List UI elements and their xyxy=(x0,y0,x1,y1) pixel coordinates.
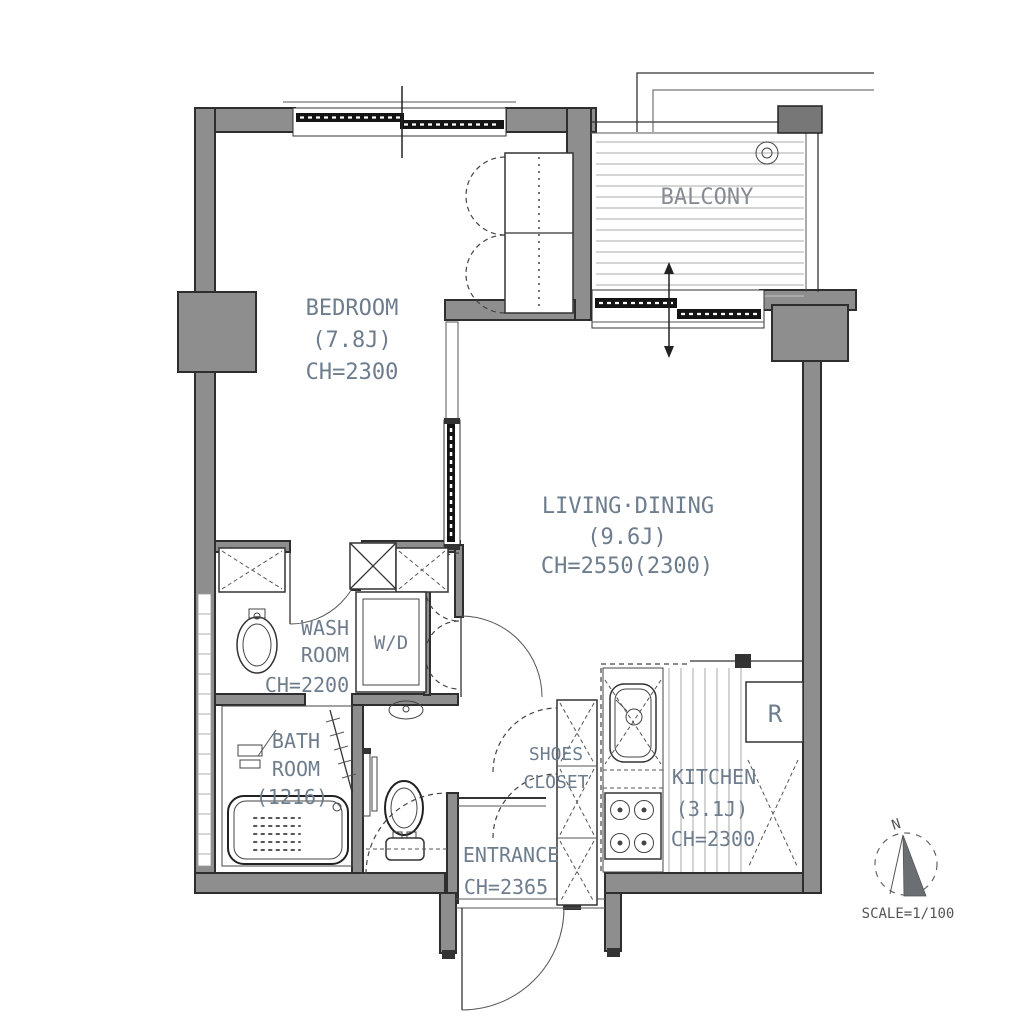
left-wall-pillar xyxy=(178,292,256,372)
balcony-sliding-door xyxy=(592,290,764,328)
floor-plan: BALCONY BEDROOM (7.8J) xyxy=(0,0,1024,1024)
living-door xyxy=(461,616,542,697)
right-wall xyxy=(803,352,821,893)
right-corner-column xyxy=(772,305,848,361)
front-door xyxy=(462,908,564,1010)
bottom-wall-right xyxy=(605,873,821,893)
bathroom-label-size: (1216) xyxy=(256,785,328,809)
entrance-label-name: ENTRANCE xyxy=(463,843,559,867)
porch-right-foot xyxy=(607,948,620,957)
entrance-label-ch: CH=2365 xyxy=(464,875,548,899)
entrance: SHOES CLOSET ENTRANCE CH=2365 xyxy=(456,700,605,1010)
hall-living-wall xyxy=(455,545,463,617)
washroom-upper-closet-right xyxy=(396,548,448,592)
toilet-top-wall xyxy=(352,694,458,705)
living-dining: LIVING·DINING (9.6J) CH=2550(2300) xyxy=(425,494,714,697)
bedroom-label-size: (7.8J) xyxy=(312,328,391,353)
shoes-closet-label-line1: SHOES xyxy=(529,744,583,765)
compass-needle-icon xyxy=(903,835,926,896)
upper-outline-outer xyxy=(637,73,874,132)
closet-bifold-door-upper xyxy=(466,157,505,235)
kitchen: R KITCHEN (3.1J) CH=2300 xyxy=(601,661,803,872)
kitchen-label-ch: CH=2300 xyxy=(671,827,755,851)
washer-dryer: W/D xyxy=(356,592,426,692)
kitchen-stove-icon xyxy=(605,793,661,859)
floor-plan-drawing: BALCONY BEDROOM (7.8J) xyxy=(0,0,1024,1024)
bedroom-living-sliding-door xyxy=(444,322,460,550)
compass: N xyxy=(875,816,937,896)
bedroom-label-ch: CH=2300 xyxy=(306,360,399,385)
washroom-label-line2: ROOM xyxy=(301,643,349,667)
bedroom-label-name: BEDROOM xyxy=(306,296,399,321)
kitchen-sink-icon xyxy=(605,680,661,764)
upper-outline-inner xyxy=(653,90,874,132)
living-label-size: (9.6J) xyxy=(587,525,666,550)
upper-wall-block xyxy=(778,106,822,133)
washroom-label-line1: WASH xyxy=(301,616,349,640)
living-label-name: LIVING·DINING xyxy=(542,494,714,519)
refrigerator-label: R xyxy=(768,700,783,728)
living-label-ch: CH=2550(2300) xyxy=(541,554,713,579)
washbasin-icon xyxy=(237,609,277,673)
pipe-shaft xyxy=(350,543,396,589)
balcony-floor-hatch xyxy=(596,142,804,296)
compass-needle-edge xyxy=(890,835,903,894)
bathroom-label-line1: BATH xyxy=(272,729,320,753)
bath-toilet-wall xyxy=(352,705,363,873)
scale-label: SCALE=1/100 xyxy=(862,906,955,922)
bath-room: BATH ROOM (1216) xyxy=(222,706,356,866)
shower-mixer-icon xyxy=(238,730,276,768)
balcony-label: BALCONY xyxy=(661,185,754,210)
shoes-closet-label-line2: CLOSET xyxy=(523,772,588,793)
bottom-wall-left xyxy=(195,873,445,893)
left-wall-window xyxy=(198,594,211,866)
bathroom-label-line2: ROOM xyxy=(272,757,320,781)
porch-right-stub xyxy=(605,893,621,951)
kitchen-label-size: (3.1J) xyxy=(676,797,748,821)
bedroom-window xyxy=(283,86,516,158)
bedroom-closet xyxy=(466,153,573,313)
washer-dryer-label: W/D xyxy=(374,632,408,654)
refrigerator-space: R xyxy=(746,682,803,742)
toilet-room xyxy=(362,701,447,874)
kitchen-label-name: KITCHEN xyxy=(672,765,756,789)
toilet-icon xyxy=(366,781,447,860)
porch-left-foot xyxy=(442,950,455,959)
entrance-left-wall xyxy=(447,793,458,903)
toilet-pipe-duct xyxy=(362,748,377,816)
porch-left-stub xyxy=(440,893,456,953)
washroom-label-ch: CH=2200 xyxy=(265,673,349,697)
compass-north-label: N xyxy=(890,816,903,834)
washroom-upper-closet-left xyxy=(219,548,285,592)
wash-room: W/D WASH ROOM CH=2200 xyxy=(219,543,448,697)
